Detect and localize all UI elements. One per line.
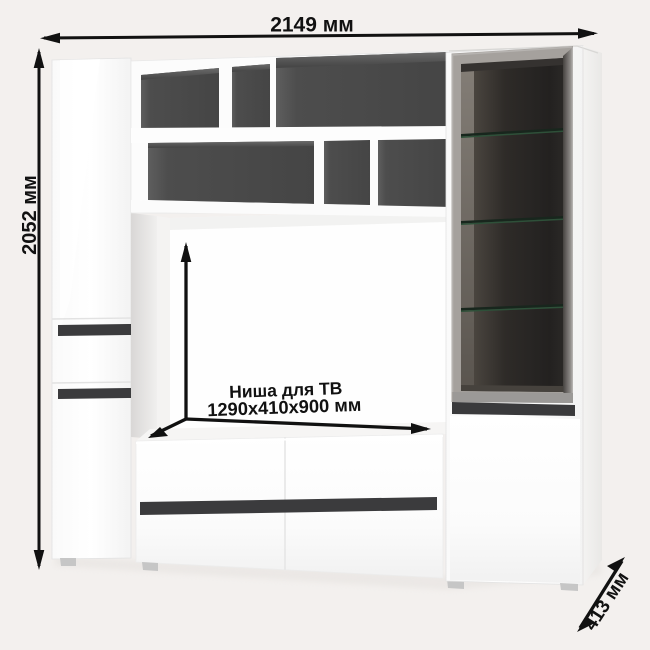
svg-text:2149 мм: 2149 мм (270, 14, 354, 37)
svg-text:2052 мм: 2052 мм (19, 175, 41, 255)
